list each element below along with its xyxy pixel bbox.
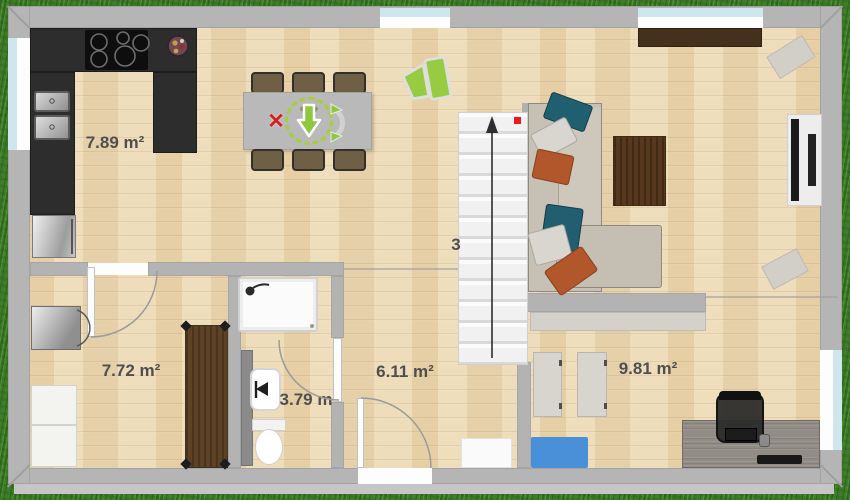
cup[interactable] bbox=[759, 434, 770, 447]
cabinet-handle bbox=[604, 360, 607, 366]
rotate-handle-icon[interactable] bbox=[326, 100, 356, 144]
coffee-table[interactable] bbox=[613, 136, 666, 206]
office-cabinet[interactable] bbox=[577, 352, 607, 417]
monitor[interactable] bbox=[725, 428, 757, 441]
wall-interior[interactable] bbox=[331, 402, 344, 468]
dining-chair[interactable] bbox=[251, 72, 284, 94]
room-label-hallway: 6.11 m² bbox=[376, 362, 434, 382]
bathroom-door-leaf[interactable] bbox=[333, 338, 342, 402]
delete-icon[interactable]: ✕ bbox=[264, 110, 288, 134]
dining-chair[interactable] bbox=[333, 149, 366, 171]
room-divider-line bbox=[344, 268, 458, 270]
window-left[interactable] bbox=[8, 38, 17, 150]
cabinet-handle bbox=[559, 360, 562, 366]
keyboard[interactable] bbox=[757, 455, 802, 464]
room-label-office: 9.81 m² bbox=[619, 359, 678, 379]
window-left[interactable] bbox=[17, 38, 30, 150]
room-label-bedroom: 7.72 m² bbox=[102, 361, 161, 381]
office-sideboard[interactable] bbox=[530, 312, 706, 331]
camera-marker-icon[interactable] bbox=[396, 54, 454, 106]
storage-bench[interactable] bbox=[185, 325, 228, 468]
room-label-bathroom: 3.79 m bbox=[280, 390, 333, 410]
window-right[interactable] bbox=[820, 350, 833, 450]
cabinet-handle bbox=[559, 403, 562, 409]
window-right[interactable] bbox=[833, 350, 842, 450]
staircase[interactable] bbox=[458, 112, 528, 365]
office-cabinet[interactable] bbox=[533, 352, 562, 417]
wall-interior[interactable] bbox=[30, 262, 88, 276]
kitchen-sink[interactable] bbox=[34, 91, 70, 112]
kitchen-sink[interactable] bbox=[34, 115, 70, 140]
refrigerator[interactable] bbox=[32, 215, 76, 258]
dining-chair[interactable] bbox=[251, 149, 284, 171]
window-top-left[interactable] bbox=[380, 17, 450, 28]
floor-plan-canvas[interactable]: ✕ 3 bbox=[0, 0, 850, 500]
window-top-left[interactable] bbox=[380, 8, 450, 17]
blue-mat[interactable] bbox=[531, 437, 588, 468]
toilet[interactable] bbox=[255, 429, 283, 465]
refrigerator-handle bbox=[71, 219, 73, 254]
bedroom-door-leaf[interactable] bbox=[87, 267, 95, 337]
wall-interior[interactable] bbox=[148, 262, 344, 276]
sideboard[interactable] bbox=[638, 28, 762, 47]
dining-chair[interactable] bbox=[292, 149, 325, 171]
bedroom-cabinet[interactable] bbox=[31, 425, 77, 467]
bedroom-door-opening[interactable] bbox=[88, 263, 148, 275]
wall-interior[interactable] bbox=[331, 276, 344, 338]
hallway-doormat[interactable] bbox=[461, 438, 512, 468]
wall-interior[interactable] bbox=[517, 362, 531, 468]
move-arrow-icon[interactable] bbox=[294, 100, 324, 142]
dining-chair[interactable] bbox=[333, 72, 366, 94]
tv-screen bbox=[791, 119, 799, 201]
front-door-opening[interactable] bbox=[358, 468, 432, 484]
window-top-right[interactable] bbox=[638, 8, 763, 17]
bedroom-cabinet[interactable] bbox=[31, 385, 77, 425]
washing-machine[interactable] bbox=[31, 306, 81, 350]
kitchen-counter[interactable] bbox=[153, 72, 197, 153]
stairs-count-label: 3 bbox=[451, 235, 460, 255]
tv-speaker bbox=[808, 134, 816, 186]
shower[interactable] bbox=[238, 277, 318, 332]
room-divider-line bbox=[706, 296, 838, 298]
office-chair-back bbox=[719, 391, 761, 400]
cooktop[interactable] bbox=[85, 30, 148, 70]
room-label-kitchen: 7.89 m² bbox=[86, 133, 145, 153]
front-door-leaf[interactable] bbox=[357, 398, 364, 468]
bathroom-sink[interactable] bbox=[250, 368, 281, 411]
cabinet-handle bbox=[604, 403, 607, 409]
dining-chair[interactable] bbox=[292, 72, 325, 94]
stairs-red-marker bbox=[514, 117, 521, 124]
window-top-right[interactable] bbox=[638, 17, 763, 28]
wall-interior[interactable] bbox=[520, 293, 706, 312]
